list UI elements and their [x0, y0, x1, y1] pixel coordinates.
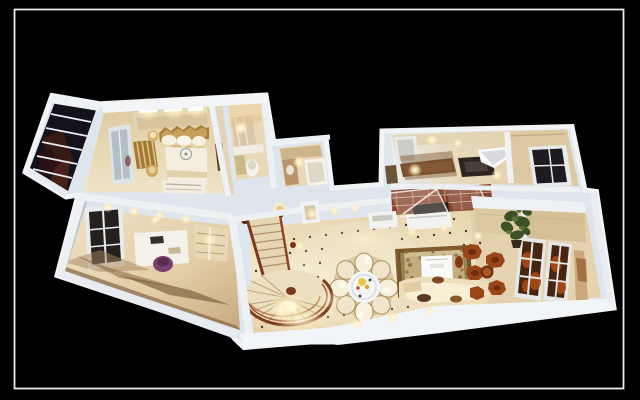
svg-text:诚信通: 诚信通	[408, 177, 468, 201]
